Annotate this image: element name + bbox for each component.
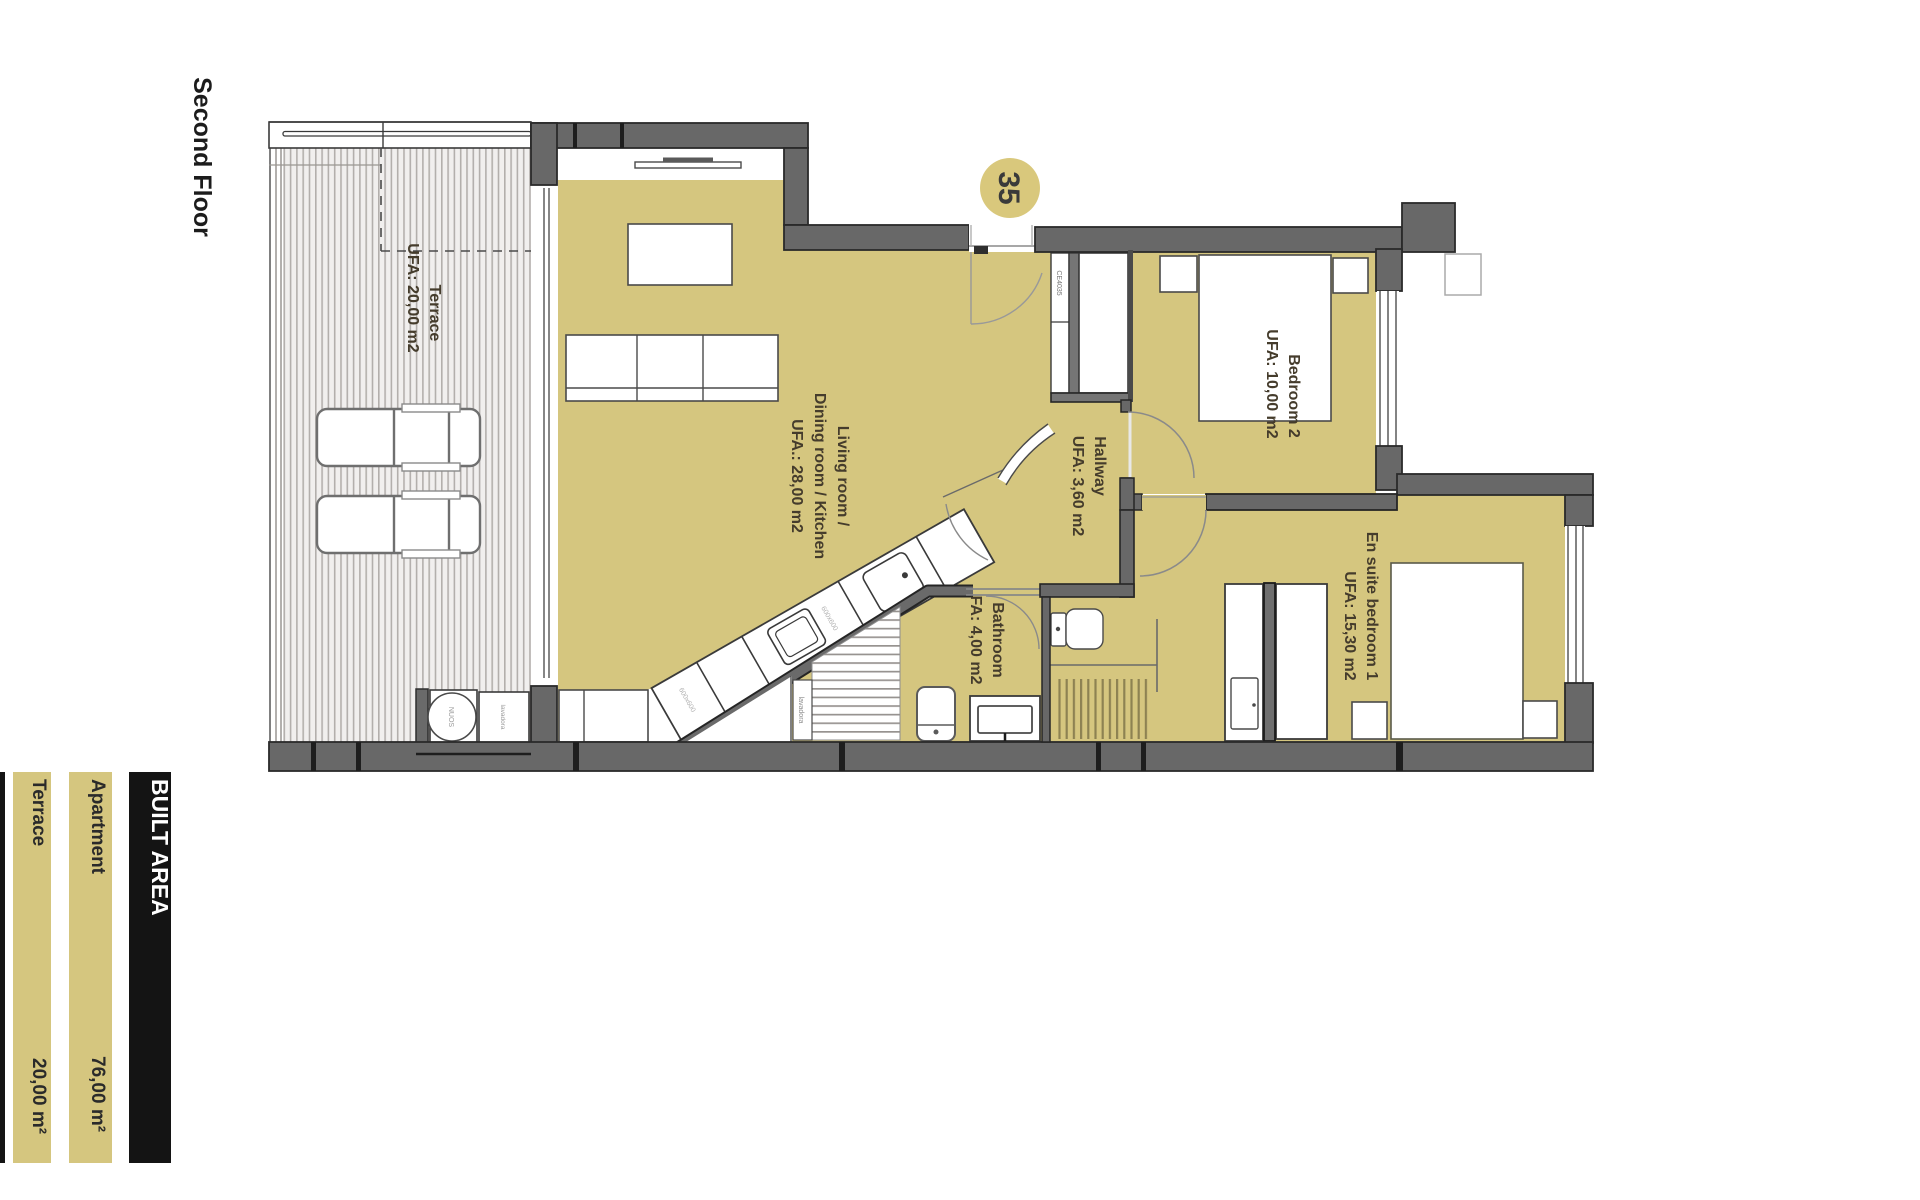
svg-text:Terrace: Terrace [426,285,443,342]
svg-text:Bedroom 2: Bedroom 2 [1285,354,1302,438]
svg-text:BUILT AREA: BUILT AREA [147,779,173,916]
svg-text:Dining room / Kitchen: Dining room / Kitchen [811,393,828,559]
svg-text:UFA: 15,30 m2: UFA: 15,30 m2 [1341,571,1358,680]
svg-text:20,00 m²: 20,00 m² [28,1058,49,1134]
svg-text:NUOS: NUOS [447,707,454,728]
svg-text:En suite bedroom 1: En suite bedroom 1 [1363,532,1380,681]
svg-text:UFA: 3,60 m2: UFA: 3,60 m2 [1069,436,1086,537]
svg-text:Apartment: Apartment [87,779,108,875]
svg-text:76,00 m²: 76,00 m² [87,1056,108,1132]
svg-text:UFA: 10,00 m2: UFA: 10,00 m2 [1263,329,1280,438]
svg-text:UFA.: 28,00 m2: UFA.: 28,00 m2 [788,419,805,533]
svg-text:UFA: 20,00 m2: UFA: 20,00 m2 [404,243,421,352]
svg-text:Terrace: Terrace [28,779,49,846]
svg-text:Hallway: Hallway [1091,436,1108,496]
svg-text:Living room /: Living room / [834,426,851,527]
svg-text:35: 35 [992,171,1025,204]
svg-text:lavadora: lavadora [797,697,804,724]
svg-text:lavadora: lavadora [499,705,506,730]
svg-text:Second Floor: Second Floor [188,77,216,237]
svg-text:Bathroom: Bathroom [989,602,1006,678]
svg-text:CE4035: CE4035 [1055,270,1062,295]
svg-text:FA: 4,00 m2: FA: 4,00 m2 [967,596,984,685]
